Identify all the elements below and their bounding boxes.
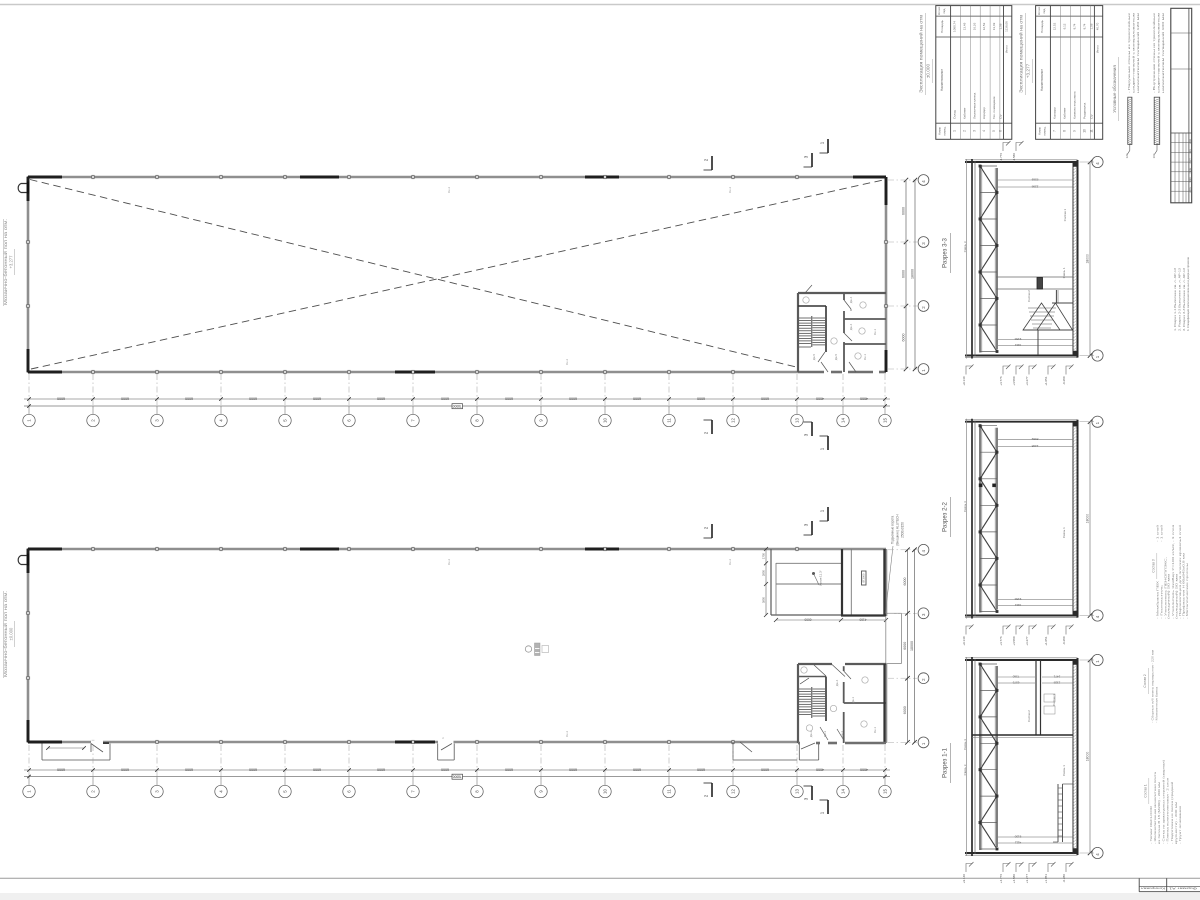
svg-text:6000: 6000 bbox=[761, 768, 769, 772]
svg-text:11: 11 bbox=[667, 418, 672, 423]
svg-text:Связь 1: Связь 1 bbox=[1062, 527, 1066, 538]
svg-text:- Мембрана ПВХ: - Мембрана ПВХ bbox=[1156, 581, 1160, 619]
svg-text:- Монолитная балка: - Монолитная балка bbox=[1154, 686, 1158, 723]
svg-text:8: 8 bbox=[1063, 130, 1067, 132]
svg-text:- Топинг REFLOOR: - Топинг REFLOOR bbox=[1149, 806, 1153, 844]
svg-text:Состав 2: Состав 2 bbox=[1027, 710, 1031, 722]
svg-text:(толщиной) 50 мм: (толщиной) 50 мм bbox=[1167, 574, 1171, 619]
svg-text:Дв-3: Дв-3 bbox=[823, 731, 827, 738]
svg-text:Склад: Склад bbox=[953, 110, 957, 119]
svg-text:7: 7 bbox=[1052, 130, 1056, 132]
svg-text:9150: 9150 bbox=[1014, 835, 1021, 839]
svg-text:Мозаично-бетонный пол на отм.: Мозаично-бетонный пол на отм. bbox=[3, 219, 8, 305]
svg-text:Ок-2: Ок-2 bbox=[728, 559, 732, 566]
svg-text:6000: 6000 bbox=[902, 334, 906, 342]
svg-text:9,12: 9,12 bbox=[1063, 23, 1067, 29]
svg-text:4000: 4000 bbox=[860, 768, 868, 772]
svg-text:4: 4 bbox=[982, 130, 986, 132]
svg-text:+3.277: +3.277 bbox=[1025, 376, 1029, 386]
svg-text:Экспликация помещений на отм: Экспликация помещений на отм bbox=[1018, 15, 1024, 93]
svg-text:- 1 слой: - 1 слой bbox=[1156, 524, 1160, 542]
svg-text:сэндвич-панелей с минераловатн: сэндвич-панелей с минераловатным bbox=[1131, 13, 1135, 93]
svg-text:18000: 18000 bbox=[911, 269, 915, 279]
svg-text:6000: 6000 bbox=[377, 768, 385, 772]
svg-text:40,70: 40,70 bbox=[1096, 22, 1100, 30]
svg-text:Формат А1: Формат А1 bbox=[1168, 887, 1197, 891]
svg-text:±0.000: ±0.000 bbox=[9, 627, 14, 640]
svg-text:С/у: С/у bbox=[999, 114, 1003, 119]
svg-text:Дв-1: Дв-1 bbox=[851, 697, 855, 704]
svg-text:6000: 6000 bbox=[505, 768, 513, 772]
svg-text:6: 6 bbox=[999, 130, 1003, 132]
svg-text:6000: 6000 bbox=[697, 397, 705, 401]
svg-text:1138,08: 1138,08 bbox=[1005, 21, 1009, 32]
svg-text:12: 12 bbox=[731, 418, 736, 423]
svg-text:Комната персонала: Комната персонала bbox=[1073, 91, 1077, 119]
svg-text:6000: 6000 bbox=[377, 397, 385, 401]
svg-text:Изм: Изм bbox=[1189, 139, 1192, 144]
svg-text:11: 11 bbox=[667, 789, 672, 794]
svg-text:- 1 слой: - 1 слой bbox=[1178, 524, 1182, 542]
svg-text:4160: 4160 bbox=[859, 618, 866, 622]
svg-text:6000: 6000 bbox=[313, 397, 321, 401]
svg-text:14: 14 bbox=[841, 418, 846, 423]
svg-text:4111: 4111 bbox=[1015, 841, 1022, 845]
svg-text:4000: 4000 bbox=[816, 768, 824, 772]
svg-text:+3.277: +3.277 bbox=[1025, 636, 1029, 646]
svg-text:4000: 4000 bbox=[816, 397, 824, 401]
svg-text:Связь 3: Связь 3 bbox=[963, 739, 967, 750]
svg-text:Лист: Лист bbox=[1189, 157, 1192, 163]
svg-text:-0.280: -0.280 bbox=[1062, 636, 1066, 645]
svg-text:6000: 6000 bbox=[633, 397, 641, 401]
svg-text:9: 9 bbox=[1073, 130, 1077, 132]
svg-text:12,52: 12,52 bbox=[982, 22, 986, 30]
svg-text:+9.140: +9.140 bbox=[962, 376, 966, 386]
svg-text:- Сборные ж/б плиты перекрытия: - Сборные ж/б плиты перекрытия - 220 мм bbox=[1150, 650, 1154, 723]
svg-text:Уклон 11.3°: Уклон 11.3° bbox=[819, 569, 823, 586]
svg-text:- Утеплитель ЭкоВер У=100 кг/м: - Утеплитель ЭкоВер У=100 кг/м3, bbox=[1171, 543, 1175, 619]
svg-text:7560: 7560 bbox=[1012, 675, 1019, 679]
svg-text:Разрез 3-3: Разрез 3-3 bbox=[942, 237, 949, 268]
svg-text:- 1 слой: - 1 слой bbox=[1160, 524, 1164, 542]
svg-text:+4.776: +4.776 bbox=[999, 636, 1003, 646]
svg-text:Дв-2: Дв-2 bbox=[809, 731, 813, 738]
svg-text:8569: 8569 bbox=[1031, 437, 1038, 441]
svg-text:крупности) - 200 мм: крупности) - 200 мм bbox=[1174, 802, 1178, 844]
svg-text:1,58: 1,58 bbox=[1090, 23, 1094, 29]
svg-text:Дв-4: Дв-4 bbox=[835, 680, 839, 687]
svg-text:18000: 18000 bbox=[1086, 752, 1090, 762]
svg-text:10: 10 bbox=[603, 418, 608, 423]
svg-text:6000: 6000 bbox=[505, 397, 513, 401]
svg-text:Номер: Номер bbox=[1038, 126, 1042, 135]
svg-text:18000: 18000 bbox=[1086, 514, 1090, 524]
svg-text:6000: 6000 bbox=[185, 397, 193, 401]
svg-text:Экспликация помещений на отм: Экспликация помещений на отм bbox=[918, 15, 924, 93]
svg-text:- Сетка из арматурных стержней: - Сетка из арматурных стержней (сварная) bbox=[1161, 760, 1165, 844]
svg-text:1328: 1328 bbox=[1053, 681, 1060, 685]
svg-text:11: 11 bbox=[1090, 129, 1094, 133]
svg-text:(Внешние) ALUTECH: (Внешние) ALUTECH bbox=[896, 514, 900, 546]
svg-text:+4.776: +4.776 bbox=[999, 376, 1003, 386]
svg-text:6575: 6575 bbox=[1012, 681, 1019, 685]
svg-text:+4.580: +4.580 bbox=[1012, 874, 1016, 884]
svg-text:Ок-2: Ок-2 bbox=[728, 187, 732, 194]
svg-text:6000: 6000 bbox=[633, 768, 641, 772]
svg-text:Ок-1: Ок-1 bbox=[863, 354, 867, 361]
svg-text:4111: 4111 bbox=[1015, 603, 1022, 607]
svg-text:Раздевалка: Раздевалка bbox=[1083, 102, 1087, 119]
svg-text:15: 15 bbox=[883, 418, 888, 423]
svg-text:Подъемные ворота: Подъемные ворота bbox=[891, 516, 895, 545]
svg-text:Кол-во: Кол-во bbox=[1037, 6, 1041, 15]
svg-text:- Наружные стены из трехслойны: - Наружные стены из трехслойных bbox=[1127, 12, 1131, 93]
svg-text:6000: 6000 bbox=[313, 768, 321, 772]
svg-text:6000: 6000 bbox=[441, 397, 449, 401]
svg-text:+4.580: +4.580 bbox=[1012, 376, 1016, 386]
svg-text:2298: 2298 bbox=[1031, 444, 1038, 448]
svg-text:6000: 6000 bbox=[249, 768, 257, 772]
svg-text:1: 1 bbox=[953, 130, 957, 132]
svg-text:Ок-1: Ок-1 bbox=[873, 727, 877, 734]
svg-text:Площадь: Площадь bbox=[940, 20, 944, 33]
svg-text:-0.280: -0.280 bbox=[1062, 874, 1066, 883]
svg-text:из бетона В 15 (М200) - 200 мм: из бетона В 15 (М200) - 200 мм bbox=[1157, 782, 1161, 844]
svg-text:Дата: Дата bbox=[1189, 187, 1192, 193]
svg-text:наполнителем толщиной 100 мм: наполнителем толщиной 100 мм bbox=[1161, 13, 1165, 93]
svg-text:- Металлические прогоны: - Металлические прогоны bbox=[1185, 563, 1189, 619]
svg-text:120: 120 bbox=[1125, 153, 1129, 158]
svg-text:Nдок: Nдок bbox=[1189, 167, 1192, 173]
svg-text:Дв-4: Дв-4 bbox=[849, 324, 853, 331]
svg-text:13,49: 13,49 bbox=[962, 22, 966, 30]
svg-text:С/у: С/у bbox=[1090, 114, 1094, 119]
svg-text:16,26: 16,26 bbox=[972, 22, 976, 30]
svg-text:6000: 6000 bbox=[903, 578, 907, 586]
svg-text:Кабинет: Кабинет bbox=[962, 107, 966, 119]
svg-text:6000: 6000 bbox=[569, 768, 577, 772]
svg-text:8,74: 8,74 bbox=[1083, 23, 1087, 29]
svg-text:+1.051: +1.051 bbox=[1044, 376, 1048, 386]
svg-text:+9.140: +9.140 bbox=[962, 874, 966, 884]
svg-text:Разрез 2-2: Разрез 2-2 bbox=[942, 501, 949, 532]
svg-text:(толщиной) 50 мм: (толщиной) 50 мм bbox=[1175, 574, 1179, 619]
svg-text:2. Разрез 2-2 Выполнен см. л.: 2. Разрез 2-2 Выполнен см. л. АР-13 bbox=[1177, 268, 1181, 331]
svg-text:- Внутренние стены из трехслой: - Внутренние стены из трехслойных bbox=[1152, 12, 1156, 93]
svg-text:6000: 6000 bbox=[121, 397, 129, 401]
svg-text:- Профнастил Н 60х845х0.8 мм: - Профнастил Н 60х845х0.8 мм bbox=[1182, 553, 1186, 619]
svg-text:2298: 2298 bbox=[1031, 185, 1038, 189]
svg-text:6000: 6000 bbox=[185, 768, 193, 772]
svg-text:Дв-4: Дв-4 bbox=[849, 297, 853, 304]
svg-text:Связь 3: Связь 3 bbox=[963, 501, 967, 512]
svg-text:78000: 78000 bbox=[453, 404, 462, 408]
svg-text:люд.: люд. bbox=[1043, 8, 1046, 14]
svg-text:78000: 78000 bbox=[453, 774, 462, 778]
svg-text:6000: 6000 bbox=[902, 270, 906, 278]
svg-text:Связь 1: Связь 1 bbox=[1062, 267, 1066, 278]
svg-text:Дв-3: Дв-3 bbox=[840, 731, 844, 738]
svg-text:наполнителем толщиной 120 мм: наполнителем толщиной 120 мм bbox=[1136, 13, 1140, 93]
svg-text:Наименование: Наименование bbox=[940, 69, 944, 91]
svg-text:Состав 2: Состав 2 bbox=[1143, 674, 1147, 687]
svg-text:6000: 6000 bbox=[903, 706, 907, 714]
svg-text:1,58: 1,58 bbox=[999, 23, 1003, 29]
svg-text:4000: 4000 bbox=[860, 397, 868, 401]
svg-text:+1.051: +1.051 bbox=[1044, 636, 1048, 646]
svg-text:±0.000: ±0.000 bbox=[926, 63, 931, 78]
svg-text:4111: 4111 bbox=[1015, 343, 1022, 347]
svg-text:ВТ2000: ВТ2000 bbox=[862, 573, 866, 582]
svg-text:Дв-5: Дв-5 bbox=[812, 354, 816, 361]
svg-text:6000: 6000 bbox=[569, 397, 577, 401]
svg-text:Коридор: Коридор bbox=[1052, 107, 1056, 119]
svg-text:12: 12 bbox=[731, 789, 736, 794]
svg-text:Подп: Подп bbox=[1189, 177, 1192, 183]
svg-text:10: 10 bbox=[603, 789, 608, 794]
svg-text:Кабинет: Кабинет bbox=[1063, 107, 1067, 119]
svg-text:Итого: Итого bbox=[1005, 45, 1009, 53]
svg-text:15: 15 bbox=[883, 789, 888, 794]
svg-text:Связь 3: Связь 3 bbox=[963, 764, 967, 775]
svg-text:Коридор: Коридор bbox=[982, 107, 986, 119]
svg-text:Копировал: Копировал bbox=[1140, 887, 1165, 891]
svg-text:+1.051: +1.051 bbox=[1044, 874, 1048, 884]
svg-text:1. Разрез 1-1 Выполнен см. л.: 1. Разрез 1-1 Выполнен см. л. АР-13 bbox=[1173, 268, 1177, 331]
svg-text:- Подготовка из песка (средней: - Подготовка из песка (средней bbox=[1170, 781, 1174, 844]
svg-text:Ок-2: Ок-2 bbox=[447, 187, 451, 194]
svg-text:13,49: 13,49 bbox=[992, 22, 996, 30]
svg-text:+4.580: +4.580 bbox=[1012, 153, 1016, 163]
svg-text:6000: 6000 bbox=[903, 642, 907, 650]
svg-text:Наименование: Наименование bbox=[1040, 69, 1044, 91]
svg-text:Состав 1: Состав 1 bbox=[1063, 208, 1067, 221]
svg-text:1080,74: 1080,74 bbox=[953, 21, 957, 32]
svg-text:Дв-5: Дв-5 bbox=[834, 354, 838, 361]
svg-text:Итого: Итого bbox=[1096, 45, 1100, 53]
svg-text:6000: 6000 bbox=[249, 397, 257, 401]
svg-text:- Железобетонная монолитная пл: - Железобетонная монолитная плита bbox=[1153, 771, 1157, 844]
svg-text:12,52: 12,52 bbox=[1052, 22, 1056, 30]
svg-text:- 3 слоя: - 3 слоя bbox=[1171, 524, 1175, 542]
svg-text:Ок-2: Ок-2 bbox=[447, 559, 451, 566]
svg-text:6000: 6000 bbox=[902, 207, 906, 215]
svg-text:6000: 6000 bbox=[761, 397, 769, 401]
svg-text:Ок-1: Ок-1 bbox=[873, 329, 877, 336]
svg-text:4. Спецификация заполнения око: 4. Спецификация заполнения оконных и две… bbox=[1186, 257, 1190, 331]
svg-text:6000: 6000 bbox=[57, 768, 65, 772]
svg-text:+3.277: +3.277 bbox=[1026, 63, 1031, 78]
svg-text:- Пароизоляция для плоских кро: - Пароизоляция для плоских кровель bbox=[1178, 538, 1182, 619]
svg-text:3. Разрез 3-3 Выполнен см. л.: 3. Разрез 3-3 Выполнен см. л. АР-13 bbox=[1182, 268, 1186, 331]
svg-text:13: 13 bbox=[795, 418, 800, 423]
svg-text:6000: 6000 bbox=[804, 618, 811, 622]
svg-text:18000: 18000 bbox=[910, 641, 914, 651]
svg-text:3: 3 bbox=[972, 130, 976, 132]
svg-text:Разрез 1-1: Разрез 1-1 bbox=[942, 747, 949, 778]
svg-text:+3.277: +3.277 bbox=[1025, 874, 1029, 884]
svg-text:Состав 1: Состав 1 bbox=[1144, 784, 1148, 797]
svg-text:Лестничная клетка: Лестничная клетка bbox=[972, 92, 976, 119]
svg-text:6000: 6000 bbox=[441, 768, 449, 772]
svg-text:5: 5 bbox=[992, 130, 996, 132]
svg-text:8569: 8569 bbox=[1031, 178, 1038, 182]
svg-text:2500х3150: 2500х3150 bbox=[901, 522, 905, 538]
svg-text:6000: 6000 bbox=[57, 397, 65, 401]
svg-text:1471: 1471 bbox=[1053, 675, 1060, 679]
svg-text:+4.776: +4.776 bbox=[999, 153, 1003, 163]
svg-text:Состав 1: Состав 1 bbox=[1052, 694, 1056, 706]
svg-text:Состав 3: Состав 3 bbox=[1152, 559, 1156, 572]
svg-text:9150: 9150 bbox=[1014, 337, 1021, 341]
svg-text:Ок-2: Ок-2 bbox=[565, 359, 569, 366]
svg-text:сэндвич-панелей с минераловатн: сэндвич-панелей с минераловатным bbox=[1156, 13, 1160, 93]
svg-text:помещ.: помещ. bbox=[1044, 126, 1047, 135]
svg-text:Кол.: Кол. bbox=[1189, 149, 1192, 154]
svg-text:13: 13 bbox=[795, 789, 800, 794]
svg-text:- Пленка полиэтиленовая - 2 сл: - Пленка полиэтиленовая - 2 слоя bbox=[1166, 777, 1170, 844]
svg-text:Связь 1: Связь 1 bbox=[1062, 765, 1066, 776]
svg-text:Состав 2: Состав 2 bbox=[1027, 290, 1031, 302]
svg-text:Площадь: Площадь bbox=[1040, 20, 1044, 33]
svg-text:+4.580: +4.580 bbox=[1012, 636, 1016, 646]
svg-text:помещ.: помещ. bbox=[944, 126, 947, 135]
svg-text:18000: 18000 bbox=[1086, 254, 1090, 264]
svg-text:Мозаично-бетонный пол на отм.: Мозаично-бетонный пол на отм. bbox=[3, 591, 8, 677]
svg-text:9150: 9150 bbox=[1014, 597, 1021, 601]
svg-text:Кол-во: Кол-во bbox=[937, 6, 941, 15]
svg-text:2: 2 bbox=[962, 130, 966, 132]
svg-text:8,74: 8,74 bbox=[1073, 23, 1077, 29]
svg-text:2850: 2850 bbox=[762, 569, 766, 576]
svg-text:Связь 3: Связь 3 bbox=[963, 241, 967, 252]
svg-text:- Геотекстиль: - Геотекстиль bbox=[1160, 584, 1164, 619]
svg-text:Номер: Номер bbox=[938, 126, 942, 135]
svg-text:10: 10 bbox=[1083, 129, 1087, 133]
svg-text:люд.: люд. bbox=[943, 8, 946, 14]
svg-text:+4.776: +4.776 bbox=[999, 874, 1003, 884]
svg-text:Условные обозначения: Условные обозначения bbox=[1112, 65, 1117, 113]
svg-text:14: 14 bbox=[841, 789, 846, 794]
svg-text:3850: 3850 bbox=[762, 596, 766, 603]
svg-text:6000: 6000 bbox=[697, 768, 705, 772]
svg-text:+3.277: +3.277 bbox=[9, 255, 14, 269]
svg-text:-0.280: -0.280 bbox=[1062, 376, 1066, 385]
svg-text:1750: 1750 bbox=[762, 552, 766, 559]
svg-text:Тех. помещение: Тех. помещение bbox=[992, 96, 996, 119]
svg-text:Ок-2: Ок-2 bbox=[565, 731, 569, 738]
svg-text:100: 100 bbox=[1152, 153, 1156, 158]
svg-text:- Грунт основания: - Грунт основания bbox=[1178, 805, 1182, 844]
svg-text:+9.140: +9.140 bbox=[962, 636, 966, 646]
svg-text:6000: 6000 bbox=[121, 768, 129, 772]
